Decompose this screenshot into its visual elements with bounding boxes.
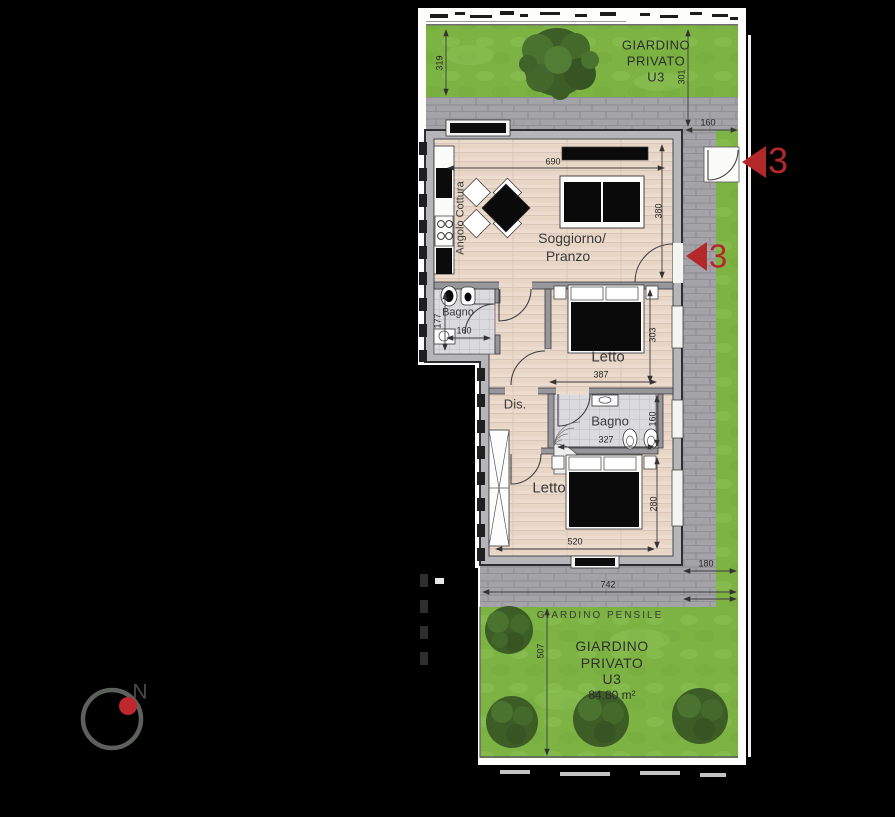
garden-bottom-area-value: 84.80 m² (588, 689, 635, 701)
kitchen-counter (434, 146, 454, 274)
garden-pensile-label: GIARDINO PENSILE (537, 611, 663, 621)
dim-bed2-width: 520 (567, 538, 582, 547)
dim-living-height: 380 (655, 203, 664, 218)
dim-garden-top-right: 301 (678, 69, 687, 84)
dim-terrace-width: 742 (600, 581, 615, 590)
entrance-marker-gate: 3 (768, 143, 788, 179)
bed-1 (554, 285, 658, 353)
dim-bed1-width: 387 (593, 371, 608, 380)
dim-corner-right: 180 (698, 560, 713, 569)
garden-bottom-label-line1: GIARDINO (575, 639, 648, 653)
room-label-bath1: Bagno (442, 308, 474, 319)
dim-gate-width: 160 (700, 119, 715, 128)
sideboard (562, 147, 648, 160)
bed-2 (552, 455, 656, 529)
dim-garden-bottom-height: 507 (537, 643, 546, 658)
dim-bed2-height: 280 (650, 496, 659, 511)
dim-bed1-height: 303 (649, 327, 658, 342)
north-label: N (132, 682, 147, 703)
garden-top-label-line3: U3 (647, 71, 665, 84)
garden-top-label-line1: GIARDINO (622, 39, 690, 52)
room-label-living-line1: Soggiorno/ (538, 231, 606, 245)
dim-bath1-width: 160 (456, 327, 471, 336)
tree-bottom-left (485, 606, 533, 654)
garden-top-label-line2: PRIVATO (627, 55, 685, 68)
garden-bottom-label-line2: PRIVATO (581, 656, 644, 670)
room-label-hall: Dis. (504, 398, 526, 411)
wardrobe (489, 430, 509, 546)
scan-marks-bottom (500, 770, 726, 777)
garden-bottom-label-line3: U3 (603, 672, 622, 686)
garden-right-strip (716, 130, 738, 607)
room-label-bed2: Letto (532, 481, 565, 496)
dim-bath2-width: 327 (598, 436, 613, 445)
room-label-kitchen: Angolo Cottura (456, 181, 467, 254)
dim-bath2-height: 160 (649, 411, 658, 426)
room-label-bed1: Letto (591, 350, 624, 365)
room-label-living-line2: Pranzo (546, 249, 590, 263)
room-label-bath2: Bagno (591, 415, 629, 428)
floor-plan-page: GIARDINO PRIVATO U3 319 301 160 3 3 690 … (0, 0, 895, 817)
entrance-marker-door: 3 (709, 240, 727, 273)
dim-bath1-height: 177 (434, 313, 443, 328)
dim-garden-top-left: 319 (436, 55, 445, 70)
gate-opening (704, 147, 739, 182)
dim-living-width: 690 (545, 158, 560, 167)
sofa (560, 176, 644, 228)
